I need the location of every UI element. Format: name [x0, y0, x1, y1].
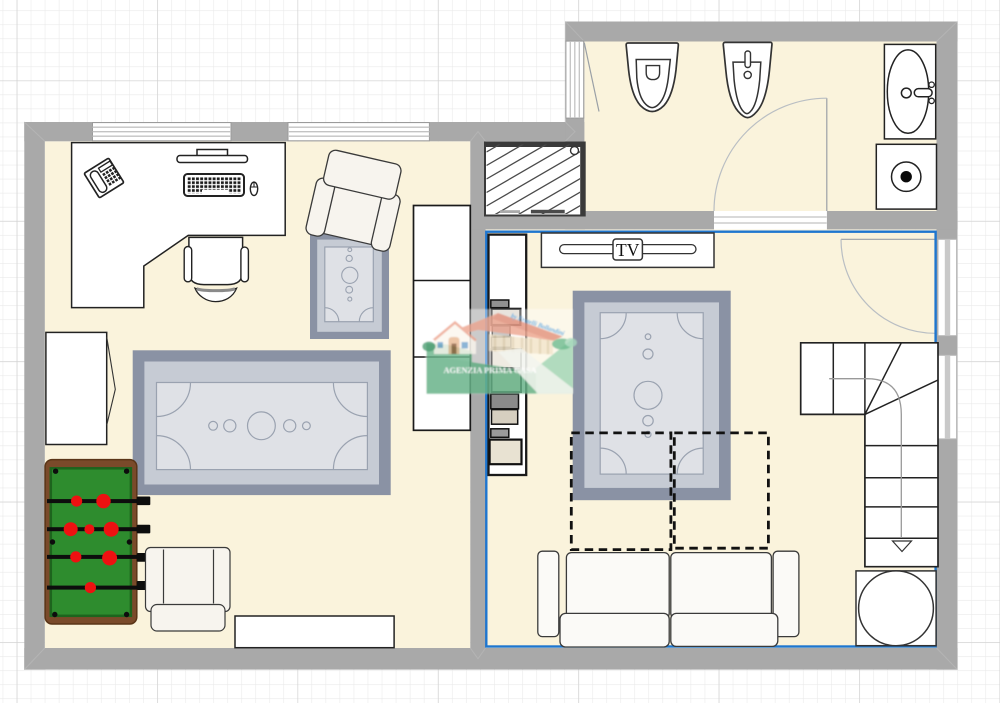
svg-text:TV: TV	[616, 240, 640, 260]
svg-text:AGENZIA PRIMA CASA: AGENZIA PRIMA CASA	[444, 365, 538, 375]
